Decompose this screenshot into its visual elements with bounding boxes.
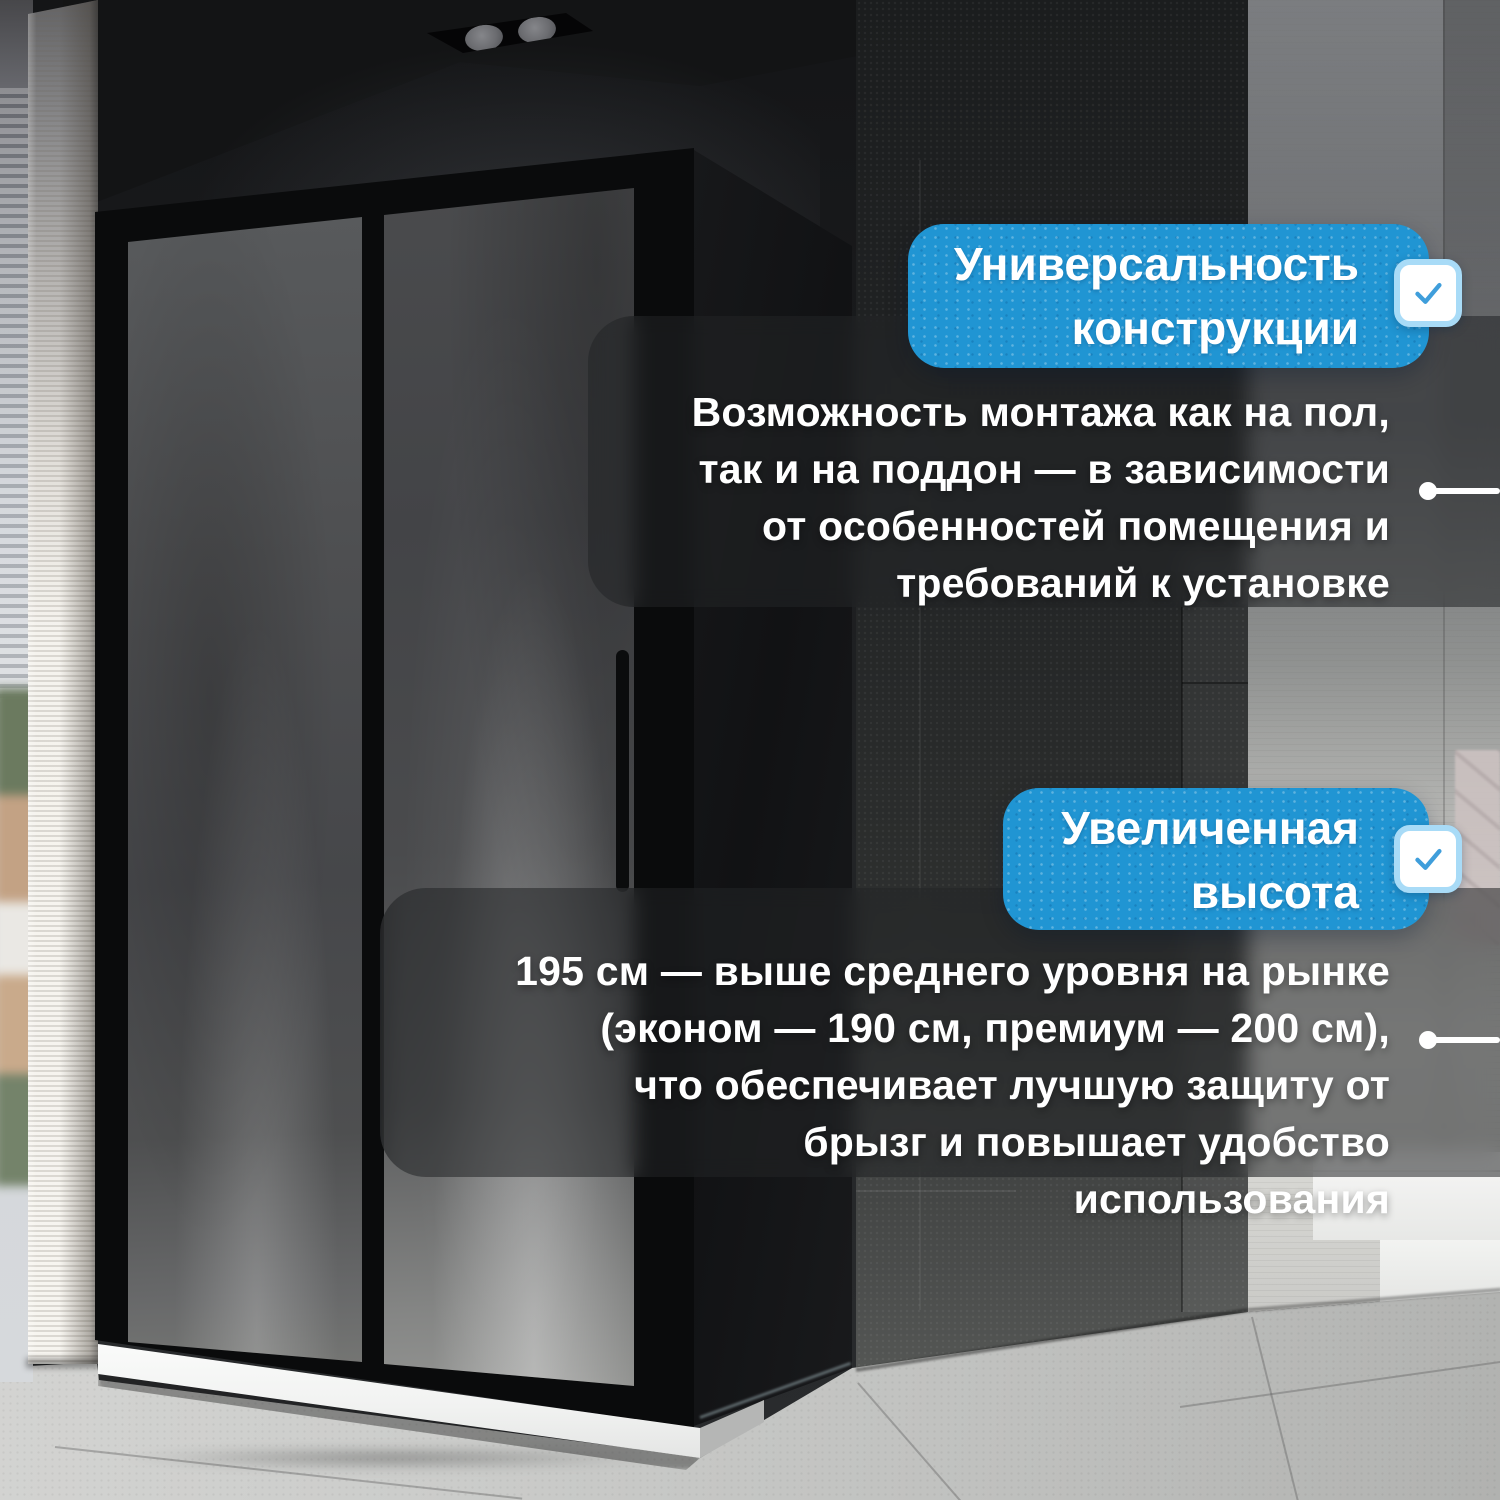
feature-description-line: что обеспечивает лучшую защиту от	[515, 1057, 1390, 1114]
feature-badge-line: высота	[1003, 860, 1359, 924]
feature-description: 195 см — выше среднего уровня на рынке (…	[515, 943, 1390, 1228]
checkmark-icon	[1407, 838, 1449, 880]
shower-glass-door-left	[128, 217, 362, 1362]
checkbox-icon	[1394, 825, 1462, 893]
feature-description-line: брызг и повышает удобство	[515, 1114, 1390, 1171]
feature-description: Возможность монтажа как на пол, так и на…	[692, 384, 1390, 612]
wall-base-shadow	[26, 1358, 100, 1368]
feature-badge: Универсальность конструкции	[908, 224, 1429, 368]
feature-description-line: (эконом — 190 см, премиум — 200 см),	[515, 1000, 1390, 1057]
feature-badge-line: конструкции	[908, 296, 1359, 360]
feature-description-line: 195 см — выше среднего уровня на рынке	[515, 943, 1390, 1000]
connector-line	[1430, 488, 1500, 494]
striped-wall-panel	[28, 0, 98, 1364]
door-handle	[616, 650, 629, 892]
checkmark-icon	[1407, 272, 1449, 314]
floor-contact-shadow	[120, 1446, 660, 1470]
feature-description-line: использования	[515, 1171, 1390, 1228]
checkbox-icon	[1394, 259, 1462, 327]
product-infographic: Возможность монтажа как на пол, так и на…	[0, 0, 1500, 1500]
feature-description-line: так и на поддон — в зависимости	[692, 441, 1390, 498]
feature-description-line: Возможность монтажа как на пол,	[692, 384, 1390, 441]
tile-grout-line	[1182, 682, 1248, 684]
feature-description-line: от особенностей помещения и	[692, 498, 1390, 555]
feature-badge-line: Универсальность	[908, 232, 1359, 296]
feature-badge-line: Увеличенная	[1003, 796, 1359, 860]
feature-badge: Увеличенная высота	[1003, 788, 1429, 930]
connector-line	[1430, 1037, 1500, 1043]
feature-description-line: требований к установке	[692, 555, 1390, 612]
